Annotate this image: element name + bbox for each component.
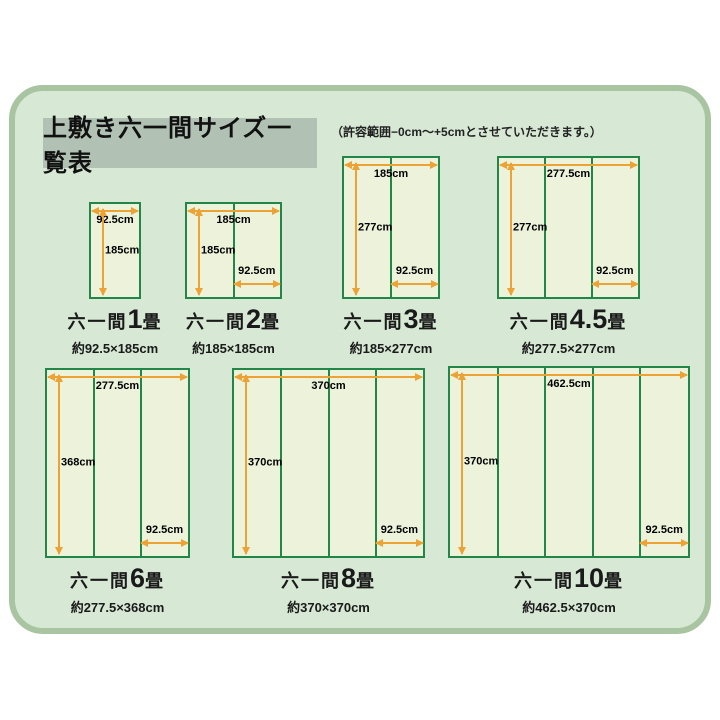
- mat-name-prefix: 六一間: [510, 312, 570, 332]
- mat-name-suffix: 畳: [356, 571, 376, 591]
- mat-name: 六一間1畳: [67, 305, 162, 335]
- mat-caption: 六一間8畳 約370×370cm: [281, 564, 376, 616]
- mat-size: 約185×277cm: [343, 338, 438, 357]
- size-chart-page: 上敷き六一間サイズ一覧表 （許容範囲−0cm〜+5cmとさせていただきます。） …: [0, 0, 720, 720]
- mat-diagram-8jo: 370cm 370cm 92.5cm 六一間8畳 約370×370cm: [232, 368, 425, 558]
- mat-name: 六一間3畳: [343, 305, 438, 335]
- mat-size: 約277.5×277cm: [510, 338, 628, 357]
- height-arrow: [102, 209, 104, 295]
- width-label: 185cm: [187, 215, 280, 226]
- panel-width-arrow: [376, 542, 423, 544]
- mat-name-suffix: 畳: [607, 312, 627, 332]
- panel-width-arrow: [234, 283, 281, 285]
- page-title: 上敷き六一間サイズ一覧表: [43, 118, 317, 168]
- mat-size: 約370×370cm: [281, 597, 376, 616]
- mat-rect: 185cm 185cm 92.5cm: [185, 202, 282, 299]
- mat-name-number: 8: [341, 563, 356, 593]
- mat-size: 約92.5×185cm: [67, 338, 162, 357]
- mat-name-prefix: 六一間: [514, 571, 574, 591]
- height-label: 277cm: [513, 222, 547, 233]
- mat-name: 六一間4.5畳: [510, 305, 628, 335]
- mat-name-prefix: 六一間: [343, 312, 403, 332]
- mat-caption: 六一間10畳 約462.5×370cm: [514, 564, 624, 616]
- width-arrow: [451, 374, 687, 376]
- mat-name: 六一間8畳: [281, 564, 376, 594]
- mat-name-number: 6: [130, 563, 145, 593]
- mat-name-prefix: 六一間: [281, 571, 341, 591]
- mat-name-number: 2: [246, 304, 261, 334]
- width-label: 277.5cm: [47, 381, 188, 392]
- height-arrow: [58, 375, 60, 554]
- panel-width-label: 92.5cm: [592, 266, 638, 277]
- height-label: 370cm: [464, 457, 498, 468]
- mat-name: 六一間2畳: [186, 305, 281, 335]
- mat-rect: 92.5cm 185cm: [89, 202, 141, 299]
- panel-divider: [328, 370, 330, 556]
- width-label: 277.5cm: [499, 169, 638, 180]
- panel-width-label: 92.5cm: [141, 525, 188, 536]
- panel-width-label: 92.5cm: [391, 266, 438, 277]
- width-label: 462.5cm: [450, 379, 688, 390]
- mat-name-suffix: 畳: [419, 312, 439, 332]
- mat-diagram-4-5jo: 277.5cm 277cm 92.5cm 六一間4.5畳 約277.5×277c…: [497, 156, 640, 299]
- mat-name-number: 3: [403, 304, 418, 334]
- width-arrow: [500, 164, 637, 166]
- width-arrow: [235, 376, 422, 378]
- mat-name-prefix: 六一間: [70, 571, 130, 591]
- panel-width-arrow: [391, 283, 438, 285]
- mat-diagram-1jo: 92.5cm 185cm 六一間1畳 約92.5×185cm: [89, 202, 141, 299]
- panel-width-arrow: [592, 283, 638, 285]
- page-title-text: 上敷き六一間サイズ一覧表: [43, 108, 317, 178]
- mat-name-prefix: 六一間: [67, 312, 127, 332]
- mat-rect: 370cm 370cm 92.5cm: [232, 368, 425, 558]
- mat-name-suffix: 畳: [261, 312, 281, 332]
- mat-name-number: 1: [127, 304, 142, 334]
- mat-caption: 六一間4.5畳 約277.5×277cm: [510, 305, 628, 357]
- panel-width-label: 92.5cm: [376, 525, 423, 536]
- mat-diagram-6jo: 277.5cm 368cm 92.5cm 六一間6畳 約277.5×368cm: [45, 368, 190, 558]
- mat-diagram-2jo: 185cm 185cm 92.5cm 六一間2畳 約185×185cm: [185, 202, 282, 299]
- mat-diagram-10jo: 462.5cm 370cm 92.5cm 六一間10畳 約462.5×370cm: [448, 366, 690, 558]
- height-arrow: [510, 163, 512, 295]
- height-arrow: [355, 163, 357, 295]
- panel-width-label: 92.5cm: [640, 525, 688, 536]
- panel-width-arrow: [640, 542, 688, 544]
- height-label: 277cm: [358, 222, 392, 233]
- width-label: 370cm: [234, 381, 423, 392]
- width-label: 185cm: [344, 169, 438, 180]
- height-arrow: [245, 375, 247, 554]
- mat-name-number: 4.5: [570, 304, 608, 334]
- mat-size: 約185×185cm: [186, 338, 281, 357]
- mat-size: 約277.5×368cm: [70, 597, 165, 616]
- height-arrow: [461, 373, 463, 554]
- panel-width-arrow: [141, 542, 188, 544]
- tolerance-note: （許容範囲−0cm〜+5cmとさせていただきます。）: [331, 123, 602, 140]
- mat-name: 六一間10畳: [514, 564, 624, 594]
- mat-rect: 185cm 277cm 92.5cm: [342, 156, 440, 299]
- mat-caption: 六一間2畳 約185×185cm: [186, 305, 281, 357]
- height-label: 185cm: [105, 245, 139, 256]
- mat-rect: 277.5cm 277cm 92.5cm: [497, 156, 640, 299]
- width-arrow: [48, 376, 187, 378]
- mat-rect: 462.5cm 370cm 92.5cm: [448, 366, 690, 558]
- mat-caption: 六一間1畳 約92.5×185cm: [67, 305, 162, 357]
- height-arrow: [198, 209, 200, 295]
- panel-divider: [592, 368, 594, 556]
- width-label: 92.5cm: [91, 215, 139, 226]
- mat-name-suffix: 畳: [145, 571, 165, 591]
- mat-name: 六一間6畳: [70, 564, 165, 594]
- mat-name-suffix: 畳: [143, 312, 163, 332]
- mat-size: 約462.5×370cm: [514, 597, 624, 616]
- mat-diagram-3jo: 185cm 277cm 92.5cm 六一間3畳 約185×277cm: [342, 156, 440, 299]
- mat-rect: 277.5cm 368cm 92.5cm: [45, 368, 190, 558]
- height-label: 185cm: [201, 245, 235, 256]
- mat-name-suffix: 畳: [604, 571, 624, 591]
- mat-name-prefix: 六一間: [186, 312, 246, 332]
- panel-divider: [544, 368, 546, 556]
- mat-caption: 六一間3畳 約185×277cm: [343, 305, 438, 357]
- panel-width-label: 92.5cm: [234, 266, 281, 277]
- mat-caption: 六一間6畳 約277.5×368cm: [70, 564, 165, 616]
- height-label: 370cm: [248, 458, 282, 469]
- height-label: 368cm: [61, 458, 95, 469]
- mat-name-number: 10: [574, 563, 604, 593]
